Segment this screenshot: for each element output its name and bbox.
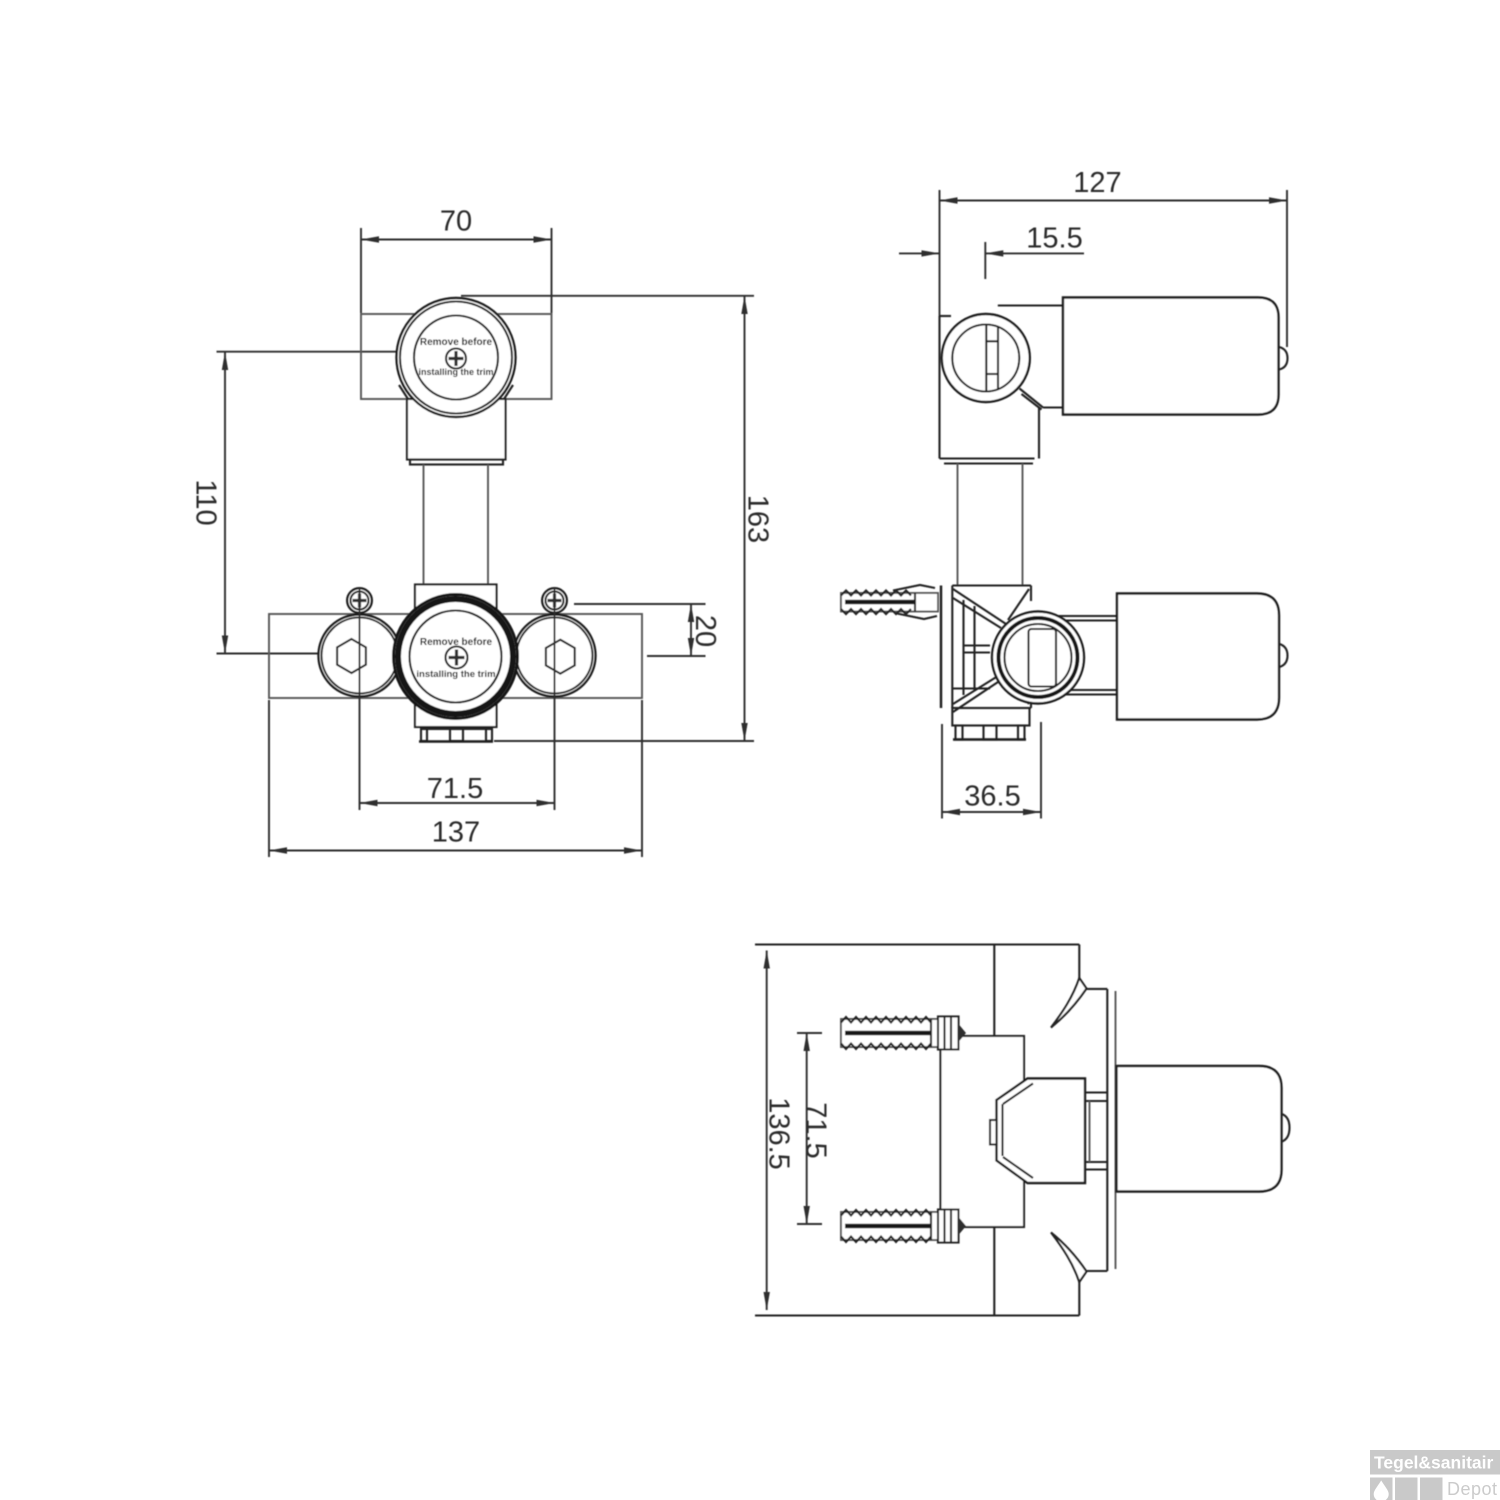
svg-text:Remove before: Remove before [420, 337, 493, 348]
svg-text:installing the trim: installing the trim [416, 669, 495, 680]
svg-text:71.5: 71.5 [800, 1102, 832, 1158]
svg-text:Depot: Depot [1447, 1479, 1498, 1499]
svg-text:137: 137 [432, 817, 480, 849]
svg-text:136.5: 136.5 [763, 1097, 795, 1170]
svg-text:71.5: 71.5 [427, 773, 483, 805]
svg-text:70: 70 [440, 206, 472, 238]
svg-text:163: 163 [742, 495, 774, 543]
svg-text:20: 20 [689, 615, 721, 647]
svg-text:127: 127 [1073, 167, 1121, 199]
svg-text:15.5: 15.5 [1026, 223, 1082, 255]
svg-text:Tegel&sanitair: Tegel&sanitair [1374, 1453, 1493, 1473]
svg-text:36.5: 36.5 [964, 781, 1020, 813]
svg-text:110: 110 [190, 479, 222, 525]
